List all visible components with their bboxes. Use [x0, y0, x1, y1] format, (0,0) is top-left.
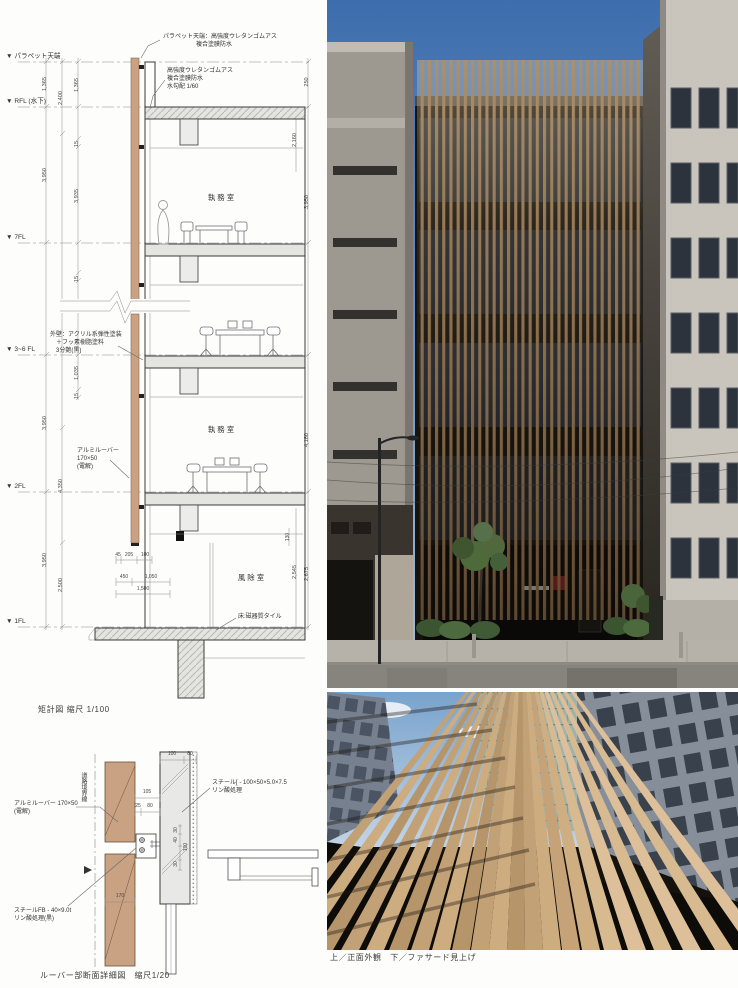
dim: 100 — [141, 552, 150, 558]
label-fb1: スチールFB - 40×9.0t — [14, 907, 72, 914]
ann-wall1: 外壁：アクリル系弾性塗装 — [50, 330, 122, 338]
boundary-label: 道路境界線 — [80, 771, 87, 802]
dim: 250 — [304, 77, 310, 86]
room-windbreak: 風除室 — [238, 573, 266, 582]
dim: 1,050 — [145, 574, 158, 580]
structure — [58, 58, 305, 698]
dim: 40 — [173, 837, 179, 843]
dim: 30 — [173, 861, 179, 867]
level-parapet: ▼ パラペット天端 — [6, 51, 61, 60]
dim: 1,035 — [74, 366, 80, 380]
dim: 15 — [74, 141, 80, 147]
dim: 105 — [143, 789, 152, 795]
dim: 15 — [74, 276, 80, 282]
dim: 100 — [183, 843, 189, 852]
section-caption: 矩計図 縮尺 1/100 — [38, 704, 110, 715]
dim: 2,400 — [58, 91, 64, 105]
front-elevation-photo — [327, 0, 738, 688]
magazine-page: ▼ パラペット天端 ▼ RFL (水下) ▼ 7FL ▼ 3~6 FL ▼ 2F… — [0, 0, 738, 988]
louver-section — [105, 762, 135, 966]
ann-parapet2: 複合塗膜防水 — [196, 40, 232, 48]
label-louver2: (電解) — [14, 807, 30, 815]
label-steel1: スチール[ - 100×50×5.0×7.5 — [212, 779, 288, 786]
dim: 80 — [187, 751, 193, 757]
street — [327, 640, 738, 688]
dim: 3,935 — [74, 189, 80, 203]
ann-louver2: 170×50 — [77, 456, 98, 462]
side-tower — [643, 26, 660, 640]
dim: 2,500 — [58, 578, 64, 592]
label-louver1: アルミルーバー 170×50 — [14, 800, 78, 807]
boundary-arrow-icon — [84, 866, 92, 874]
dim: 2,545 — [292, 565, 298, 579]
ann-louver3: (電解) — [77, 462, 93, 470]
detail-caption: ルーバー部断面詳細図 縮尺1/20 — [40, 970, 170, 981]
ann-louver1: アルミルーバー — [77, 447, 119, 454]
dim-chains-right: 250 3,950 4,180 2,675 2,160 2,545 130 — [285, 58, 311, 630]
dim: 3,950 — [42, 168, 48, 182]
person-figure — [158, 201, 169, 245]
ann-wall3: 3分艶(黒) — [56, 346, 81, 354]
level-labels: ▼ パラペット天端 ▼ RFL (水下) ▼ 7FL ▼ 3~6 FL ▼ 2F… — [6, 51, 61, 625]
level-rfl: ▼ RFL (水下) — [6, 96, 46, 105]
left-building — [327, 42, 413, 640]
label-fb2: リン酸処理(黒) — [14, 914, 54, 922]
ann-tile: 床:磁器質タイル — [238, 612, 282, 620]
dim: 100 — [168, 751, 177, 757]
label-steel2: リン酸処理 — [212, 786, 242, 794]
furniture-2fl — [187, 458, 267, 493]
louver-screen — [417, 60, 645, 620]
level-2fl: ▼ 2FL — [6, 483, 26, 490]
dim: 1,500 — [137, 586, 150, 592]
dim: 205 — [125, 552, 134, 558]
dim: 1,365 — [74, 78, 80, 92]
facade-lookup-photo — [327, 692, 738, 950]
ann-roof1: 高強度ウレタンゴムアス — [167, 66, 233, 74]
dim: 4,350 — [58, 479, 64, 493]
dim: 2,160 — [292, 133, 298, 147]
detail-drawing: 道路境界線 — [0, 750, 327, 986]
furniture-7fl — [181, 222, 247, 244]
level-7fl: ▼ 7FL — [6, 234, 26, 241]
bracket — [136, 834, 162, 858]
dim: 3,950 — [42, 553, 48, 567]
right-building — [660, 0, 738, 662]
dim: 80 — [147, 803, 153, 809]
level-1fl: ▼ 1FL — [6, 618, 26, 625]
room-office-2f: 執務室 — [208, 425, 236, 434]
ann-roof2: 複合塗膜防水 — [167, 74, 203, 82]
dim: 170 — [116, 893, 125, 899]
street-lamp — [378, 438, 381, 664]
signboard — [649, 596, 663, 640]
dim: 30 — [173, 827, 179, 833]
room-office-7f: 執務室 — [208, 193, 236, 202]
dim: 3,950 — [42, 416, 48, 430]
dim: 450 — [120, 574, 129, 580]
ann-parapet: パラペット天端：高強度ウレタンゴムアス — [163, 32, 277, 40]
dim: 1,365 — [42, 77, 48, 91]
dim: 25 — [135, 803, 141, 809]
ann-roof3: 水勾配 1/60 — [167, 82, 199, 90]
dim: 15 — [74, 393, 80, 399]
ann-wall2: ＋フッ素樹脂塗料 — [56, 338, 104, 346]
level-36fl: ▼ 3~6 FL — [6, 346, 35, 353]
photos-caption: 上／正面外観 下／ファサード見上げ — [330, 952, 476, 963]
section-drawing: ▼ パラペット天端 ▼ RFL (水下) ▼ 7FL ▼ 3~6 FL ▼ 2F… — [0, 0, 327, 700]
furniture-36fl — [200, 321, 280, 356]
dim-bottom: 45 205 100 450 1,050 1,500 — [115, 552, 170, 598]
dim: 45 — [115, 552, 121, 558]
